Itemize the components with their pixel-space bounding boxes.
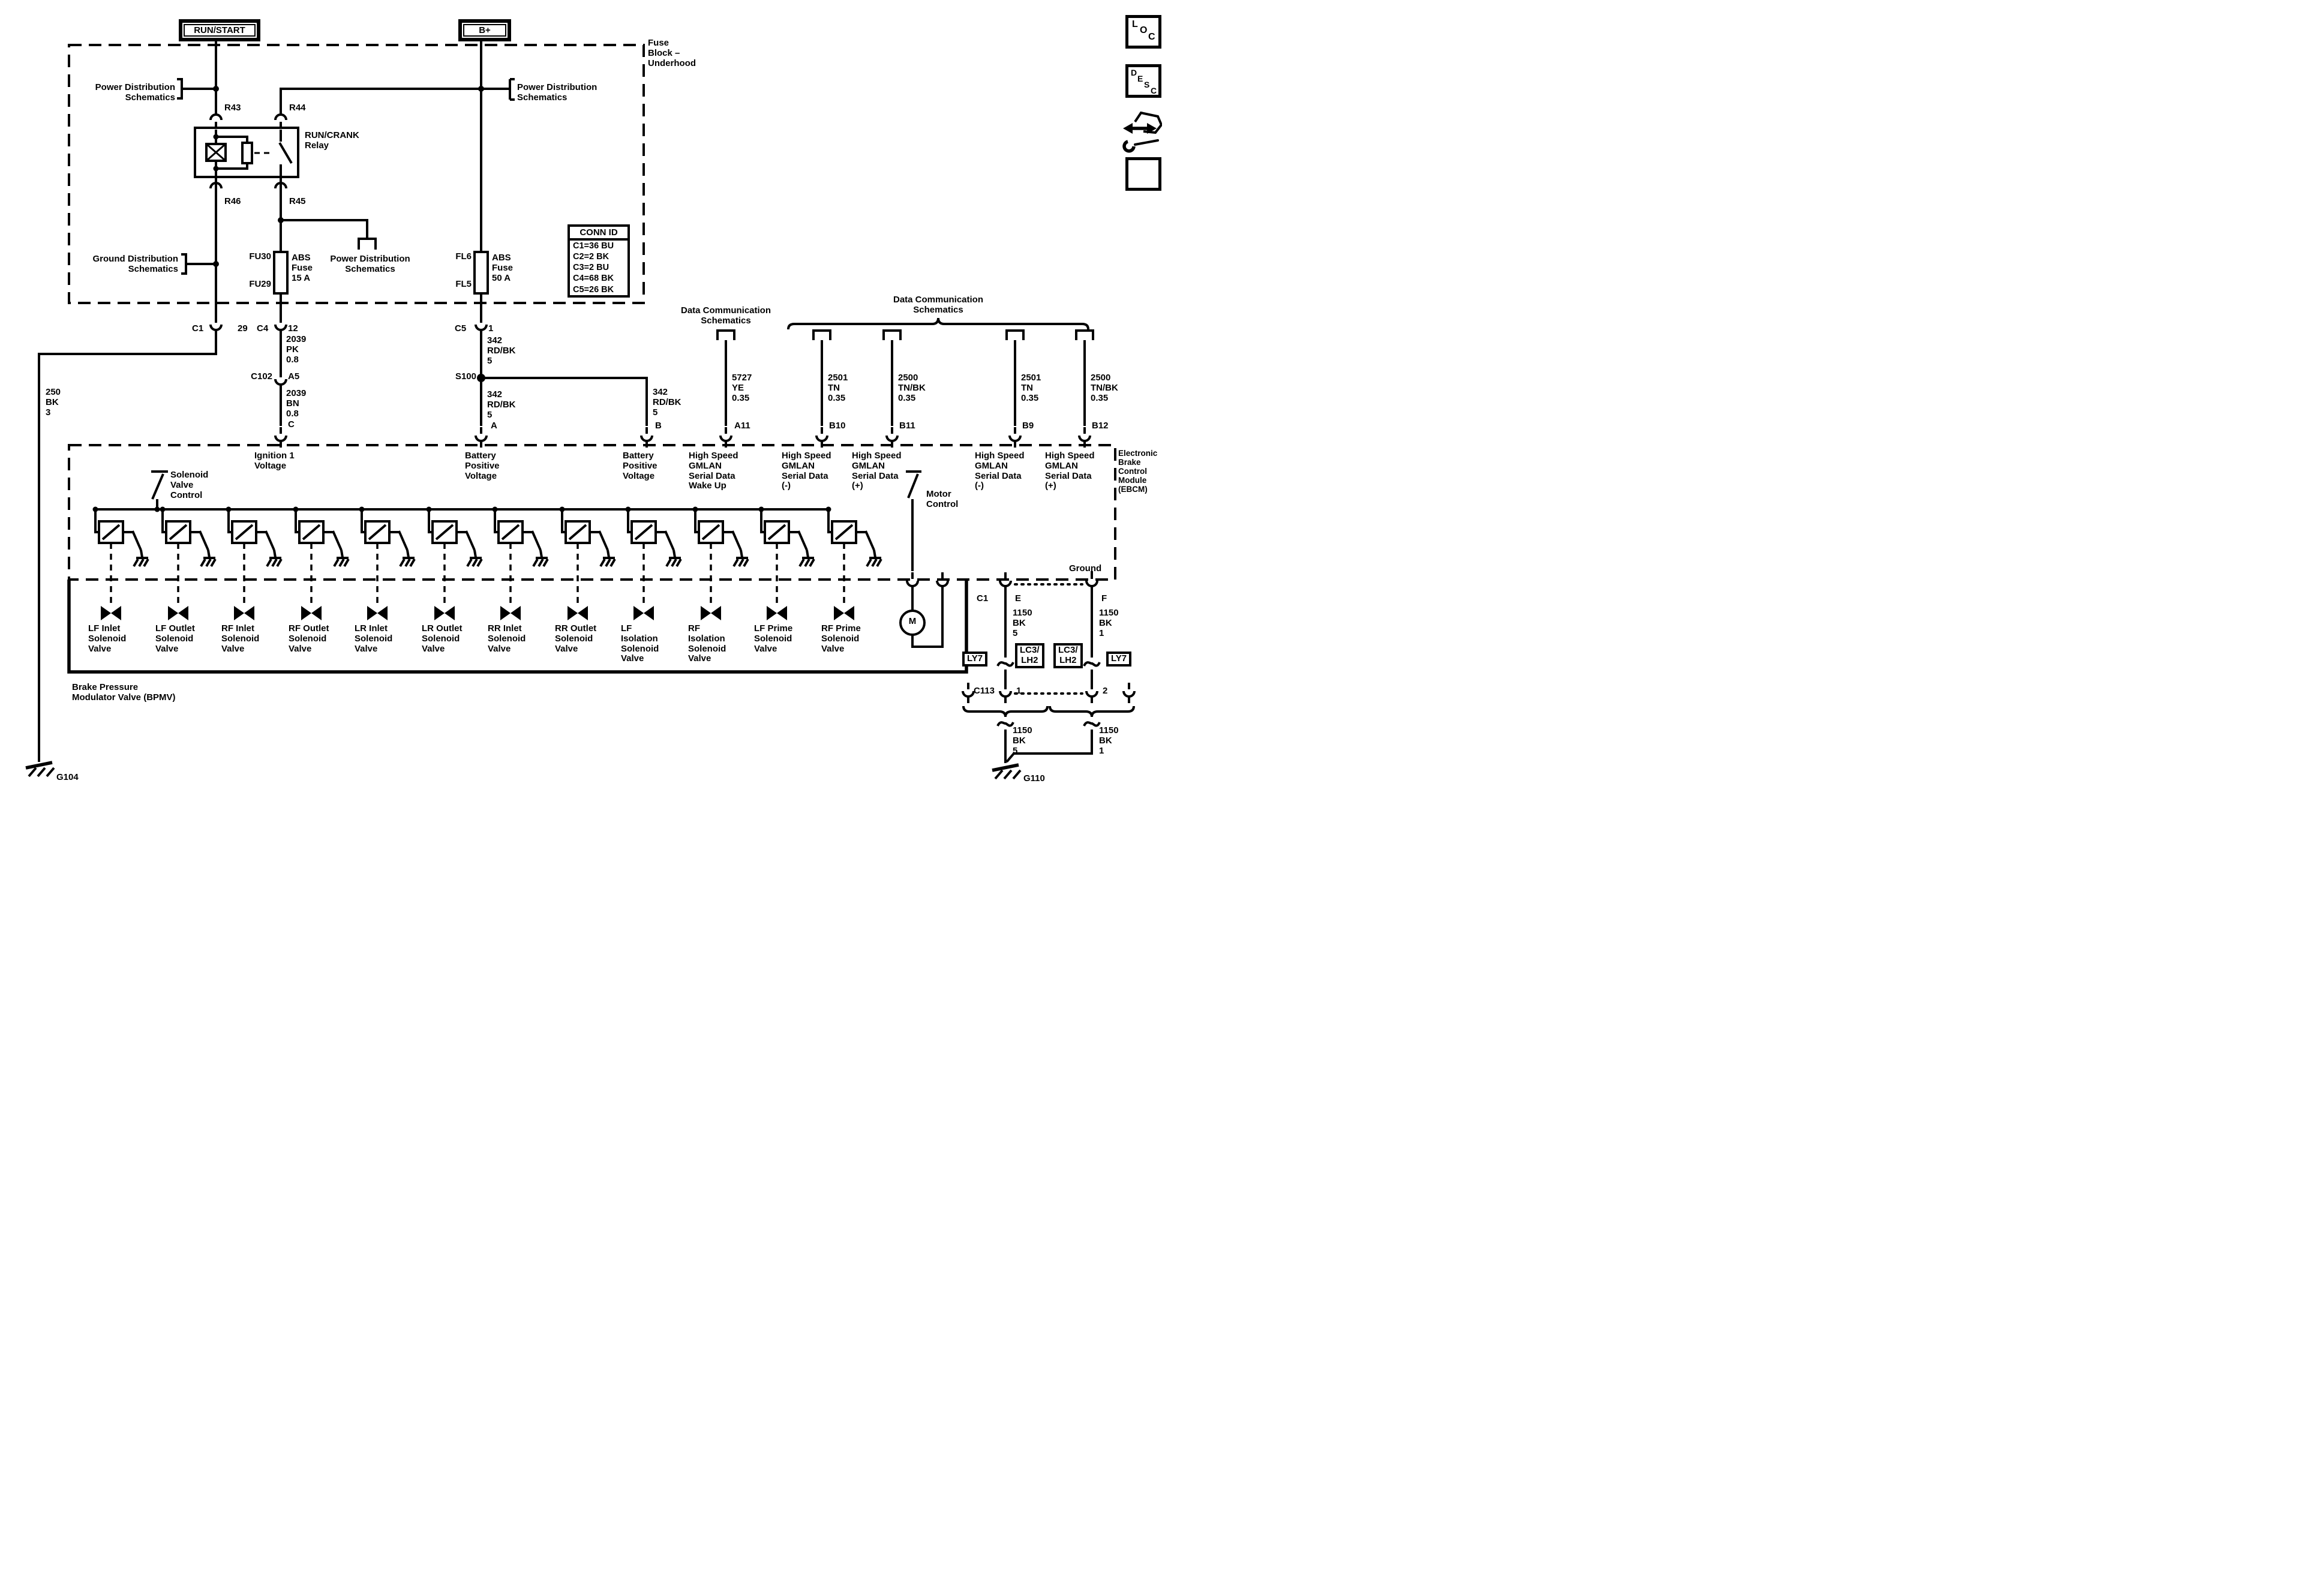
wire-5727-ye: 5727 YE 0.35 <box>732 373 752 403</box>
engine-code-ly7-right: LY7 <box>1106 652 1131 667</box>
data-comm-left-ref: Data Communication Schematics <box>672 306 780 326</box>
loc-letter: C <box>1148 32 1155 43</box>
conn-id-row: C3=2 BU <box>570 262 627 273</box>
valve-label: LF Isolation Solenoid Valve <box>621 624 659 664</box>
loc-letter: O <box>1140 25 1147 36</box>
wire-250-bk: 250 BK 3 <box>46 388 61 418</box>
ebcm-outline <box>69 445 1115 580</box>
connector-c4-label: C4 <box>257 324 268 334</box>
relay-pin-r46: R46 <box>224 197 241 207</box>
relay-pin-r45: R45 <box>289 197 306 207</box>
terminal-b-label: B <box>655 421 662 431</box>
wire-2500-b11: 2500 TN/BK 0.35 <box>898 373 926 403</box>
ebcm-pin-gmlan-b12: High Speed GMLAN Serial Data (+) <box>1045 451 1095 491</box>
valve-label: RF Outlet Solenoid Valve <box>289 624 329 654</box>
wire-2501-b10: 2501 TN 0.35 <box>828 373 848 403</box>
fuse-fu29-label: FU29 <box>243 280 271 290</box>
abs-fuse-15a-label: ABS Fuse 15 A <box>292 253 313 283</box>
conn-id-row: C5=26 BK <box>570 284 627 295</box>
ebcm-motor-control-label: Motor Control <box>926 490 958 510</box>
fuse-fu30-label: FU30 <box>243 252 271 262</box>
terminal-b11-label: B11 <box>899 421 915 431</box>
ebcm-pin-batt-b: Battery Positive Voltage <box>623 451 657 481</box>
wire-1150-e: 1150 BK 5 <box>1013 608 1032 638</box>
wire-2501-b9: 2501 TN 0.35 <box>1021 373 1041 403</box>
c113-pin2-label: 2 <box>1103 686 1107 697</box>
ground-g110-label: G110 <box>1023 774 1045 784</box>
diagnostic-tool-icon[interactable] <box>1122 110 1162 146</box>
power-dist-left-ref: Power Distribution Schematics <box>84 83 175 103</box>
fuse-block-label: Fuse Block – Underhood <box>648 38 696 68</box>
description-icon[interactable]: D E S C <box>1125 64 1161 98</box>
wire-342-c5: 342 RD/BK 5 <box>487 336 516 366</box>
pump-motor-label: M <box>903 617 921 627</box>
valve-label: RF Inlet Solenoid Valve <box>221 624 259 654</box>
engine-code-ly7-left: LY7 <box>962 652 987 667</box>
connector-c5-pin1: 1 <box>488 324 493 334</box>
wire-1150-g1: 1150 BK 1 <box>1099 726 1119 756</box>
terminal-c-label: C <box>288 420 295 430</box>
abs-fuse-50a-label: ABS Fuse 50 A <box>492 253 513 283</box>
relay-label: RUN/CRANK Relay <box>305 131 359 151</box>
wiring-svg <box>0 0 1162 786</box>
conn-id-title: CONN ID <box>570 227 627 241</box>
connector-c1-pin29: 29 <box>238 324 248 334</box>
fuse-fl5-label: FL5 <box>445 280 472 290</box>
terminal-e-label: E <box>1015 594 1021 604</box>
valve-label: RR Outlet Solenoid Valve <box>555 624 596 654</box>
ebcm-pin-ignition: Ignition 1 Voltage <box>254 451 295 472</box>
valve-label: RF Isolation Solenoid Valve <box>688 624 726 664</box>
connector-c113-label: C113 <box>960 686 995 697</box>
ebcm-pin-wakeup: High Speed GMLAN Serial Data Wake Up <box>689 451 738 491</box>
terminal-a11-label: A11 <box>734 421 750 431</box>
data-comm-right-ref: Data Communication Schematics <box>884 295 992 316</box>
run-start-source-box: RUN/START <box>179 19 260 41</box>
bpmv-label: Brake Pressure Modulator Valve (BPMV) <box>72 683 176 703</box>
terminal-b9-label: B9 <box>1022 421 1034 431</box>
ebcm-pin-gmlan-b9: High Speed GMLAN Serial Data (-) <box>975 451 1025 491</box>
relay-pin-r43: R43 <box>224 103 241 113</box>
valve-label: LF Inlet Solenoid Valve <box>88 624 126 654</box>
valve-label: LF Outlet Solenoid Valve <box>155 624 195 654</box>
desc-letter: C <box>1151 86 1157 95</box>
b-plus-source-box: B+ <box>458 19 511 41</box>
ground-g104-label: G104 <box>56 773 79 783</box>
conn-id-row: C2=2 BK <box>570 251 627 262</box>
power-dist-right-ref: Power Distribution Schematics <box>517 83 613 103</box>
ebcm-pin-gmlan-b11: High Speed GMLAN Serial Data (+) <box>852 451 902 491</box>
desc-letter: D <box>1131 68 1137 77</box>
valve-label: RF Prime Solenoid Valve <box>821 624 861 654</box>
relay-pin-r44: R44 <box>289 103 306 113</box>
wire-1150-f: 1150 BK 1 <box>1099 608 1119 638</box>
terminal-a-label: A <box>491 421 497 431</box>
desc-letter: E <box>1137 74 1143 83</box>
ebcm-ground-label: Ground <box>1069 564 1101 574</box>
run-start-label: RUN/START <box>184 24 256 37</box>
wiring-diagram-page: RUN/START B+ Fuse Block – Underhood Powe… <box>0 0 1162 786</box>
ebcm-label: Electronic Brake Control Module (EBCM) <box>1118 449 1157 494</box>
valve-label: RR Inlet Solenoid Valve <box>488 624 526 654</box>
wire-2039-bn: 2039 BN 0.8 <box>286 389 306 419</box>
terminal-f-label: F <box>1101 594 1107 604</box>
conn-id-row: C4=68 BK <box>570 273 627 284</box>
ground-dist-ref: Ground Distribution Schematics <box>87 254 178 275</box>
terminal-b10-label: B10 <box>829 421 846 431</box>
valve-label: LR Inlet Solenoid Valve <box>355 624 392 654</box>
engine-code-lc3-left: LC3/ LH2 <box>1015 643 1044 668</box>
valve-label: LR Outlet Solenoid Valve <box>422 624 463 654</box>
c113-pin1-label: 1 <box>1016 686 1021 697</box>
connector-c5-label: C5 <box>455 324 466 334</box>
connector-c102-pin-a5: A5 <box>288 372 299 382</box>
wire-2039-pk: 2039 PK 0.8 <box>286 335 306 365</box>
power-dist-mid-ref: Power Distribution Schematics <box>325 254 415 275</box>
connector-c1-ebcm-label: C1 <box>977 594 988 604</box>
conn-id-table: CONN ID C1=36 BU C2=2 BK C3=2 BU C4=68 B… <box>568 224 630 298</box>
ebcm-solenoid-valve-control-label: Solenoid Valve Control <box>170 470 208 500</box>
engine-code-lc3-right: LC3/ LH2 <box>1053 643 1083 668</box>
ebcm-pin-batt-a: Battery Positive Voltage <box>465 451 500 481</box>
location-icon[interactable]: L O C <box>1125 15 1161 49</box>
valve-label: LF Prime Solenoid Valve <box>754 624 792 654</box>
splice-s100-label: S100 <box>444 372 476 382</box>
connector-c4-pin12: 12 <box>288 324 298 334</box>
b-plus-label: B+ <box>463 24 506 37</box>
loc-letter: L <box>1132 19 1138 30</box>
ebcm-pin-gmlan-b10: High Speed GMLAN Serial Data (-) <box>782 451 831 491</box>
fuse-fl6-label: FL6 <box>445 252 472 262</box>
wire-342-a: 342 RD/BK 5 <box>487 390 516 420</box>
wire-2500-b12: 2500 TN/BK 0.35 <box>1091 373 1118 403</box>
terminal-b12-label: B12 <box>1092 421 1109 431</box>
connector-c102-label: C102 <box>238 372 272 382</box>
wire-342-b: 342 RD/BK 5 <box>653 388 681 418</box>
connector-c1-label: C1 <box>192 324 203 334</box>
desc-letter: S <box>1144 80 1149 89</box>
conn-id-row: C1=36 BU <box>570 241 627 251</box>
wire-1150-g5: 1150 BK 5 <box>1013 726 1032 756</box>
next-page-arrow-icon[interactable] <box>1125 157 1161 191</box>
